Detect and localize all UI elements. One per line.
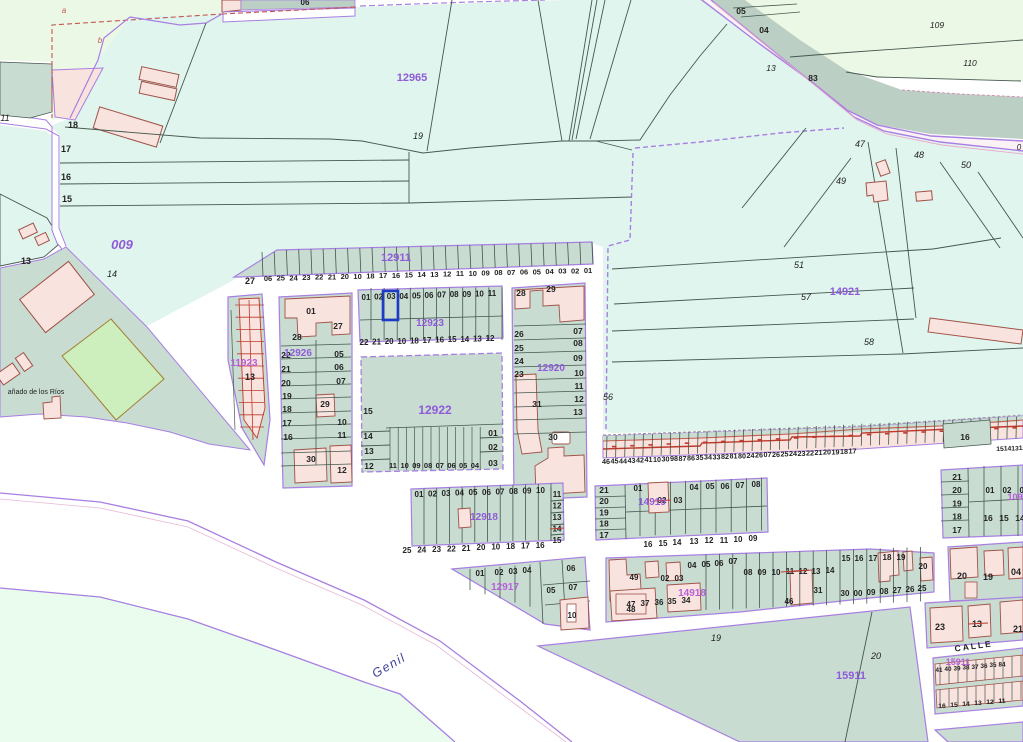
svg-text:41: 41 [645,455,653,464]
svg-text:24: 24 [747,451,755,460]
svg-text:109: 109 [1007,492,1022,502]
svg-text:23: 23 [798,449,806,458]
svg-text:86: 86 [687,453,695,462]
svg-text:16: 16 [435,336,444,345]
svg-text:34: 34 [704,453,712,462]
svg-text:33: 33 [713,452,721,461]
svg-text:28: 28 [292,332,302,342]
svg-text:05: 05 [702,560,711,569]
svg-text:03: 03 [558,267,566,276]
svg-text:49: 49 [630,573,639,582]
svg-text:09: 09 [523,486,532,495]
svg-text:añado de los Ríos: añado de los Ríos [8,389,65,396]
svg-text:04: 04 [399,292,408,301]
svg-text:12920: 12920 [537,363,565,374]
svg-text:02: 02 [571,266,579,275]
svg-text:05: 05 [412,291,421,300]
svg-text:20: 20 [599,496,609,506]
svg-text:81: 81 [730,452,738,461]
svg-text:12917: 12917 [491,582,519,593]
svg-text:19: 19 [897,553,906,562]
svg-text:05: 05 [736,6,746,16]
svg-text:17: 17 [521,542,530,551]
svg-text:26: 26 [906,585,915,594]
svg-text:12: 12 [1019,445,1023,452]
svg-text:17: 17 [379,271,387,280]
svg-text:16: 16 [283,432,293,442]
svg-text:06: 06 [721,482,730,491]
svg-text:18: 18 [506,542,515,551]
svg-text:06: 06 [301,0,310,7]
svg-text:16: 16 [644,540,653,549]
svg-text:16: 16 [983,513,993,523]
svg-text:12: 12 [986,699,994,706]
svg-text:17: 17 [423,336,432,345]
svg-text:01: 01 [362,293,371,302]
svg-text:47: 47 [627,600,636,609]
svg-text:04: 04 [455,489,464,498]
svg-text:07: 07 [729,557,738,566]
svg-text:10: 10 [475,289,484,298]
svg-text:12: 12 [337,465,347,475]
svg-text:11: 11 [456,269,464,278]
svg-text:05: 05 [334,349,344,359]
svg-text:21: 21 [328,272,336,281]
svg-text:10: 10 [353,272,361,281]
svg-text:23: 23 [302,273,310,282]
svg-text:49: 49 [836,176,846,186]
svg-text:08: 08 [752,480,761,489]
svg-text:02: 02 [661,574,670,583]
svg-text:07: 07 [569,583,578,592]
svg-text:12: 12 [443,270,451,279]
svg-text:02: 02 [428,490,437,499]
svg-text:01: 01 [306,306,316,316]
svg-text:13: 13 [364,446,374,456]
svg-text:03: 03 [488,458,498,468]
svg-text:21: 21 [462,544,471,553]
svg-text:84: 84 [998,661,1006,668]
svg-text:14919: 14919 [638,497,666,508]
svg-text:18: 18 [952,512,962,522]
svg-text:37: 37 [971,664,979,671]
svg-text:14: 14 [417,270,426,279]
svg-text:14: 14 [107,269,117,279]
svg-text:04: 04 [523,566,532,575]
svg-text:15: 15 [950,702,958,709]
svg-text:12: 12 [574,394,584,404]
svg-text:46: 46 [602,457,610,466]
svg-text:09: 09 [758,568,767,577]
svg-text:29: 29 [320,399,330,409]
svg-text:07: 07 [436,461,444,470]
svg-text:24: 24 [514,356,524,366]
svg-text:12918: 12918 [470,512,498,523]
svg-text:0: 0 [1017,143,1022,152]
svg-text:16: 16 [392,271,400,280]
svg-text:01: 01 [415,490,424,499]
svg-text:28: 28 [516,288,526,298]
svg-text:22: 22 [447,544,456,553]
svg-text:00: 00 [854,589,863,598]
svg-text:43: 43 [628,456,636,465]
svg-text:29: 29 [546,284,556,294]
svg-text:10: 10 [491,543,500,552]
svg-text:17: 17 [599,530,609,540]
svg-text:06: 06 [567,564,576,573]
svg-text:05: 05 [459,461,467,470]
svg-text:35: 35 [989,662,997,669]
svg-text:01: 01 [488,428,498,438]
svg-text:57: 57 [801,292,812,302]
svg-text:26: 26 [772,450,780,459]
svg-text:12: 12 [486,334,495,343]
svg-text:15: 15 [999,513,1009,523]
svg-text:109: 109 [930,20,944,30]
svg-text:08: 08 [880,587,889,596]
svg-text:19: 19 [282,391,292,401]
svg-text:18: 18 [599,519,609,529]
svg-text:27: 27 [333,321,343,331]
svg-text:01: 01 [634,484,643,493]
svg-text:11: 11 [338,430,347,440]
svg-text:12923: 12923 [416,318,444,329]
svg-text:14: 14 [460,335,469,344]
svg-text:16: 16 [855,554,864,563]
svg-text:21: 21 [1013,624,1023,634]
svg-text:17: 17 [869,554,878,563]
svg-text:15911: 15911 [836,670,866,682]
svg-text:08: 08 [450,290,459,299]
svg-text:04: 04 [471,461,480,470]
svg-text:83: 83 [808,73,818,83]
svg-text:15: 15 [448,335,457,344]
svg-text:11: 11 [389,461,397,470]
svg-text:10: 10 [397,337,406,346]
svg-text:07: 07 [437,291,446,300]
svg-text:20: 20 [957,571,967,581]
svg-text:10: 10 [653,455,661,464]
svg-text:13: 13 [473,334,482,343]
svg-text:27: 27 [245,276,255,286]
svg-text:07: 07 [496,487,505,496]
svg-text:12965: 12965 [397,72,428,84]
svg-text:21: 21 [599,485,609,495]
svg-text:24: 24 [417,546,426,555]
svg-text:80: 80 [738,451,746,460]
svg-text:13: 13 [573,407,583,417]
svg-text:13: 13 [974,700,982,707]
svg-text:07: 07 [573,326,583,336]
svg-text:08: 08 [573,338,583,348]
svg-text:18: 18 [410,336,419,345]
svg-text:12: 12 [553,502,562,511]
svg-text:13: 13 [21,256,31,266]
svg-text:19: 19 [983,572,993,582]
svg-text:31: 31 [532,399,542,409]
svg-text:13: 13 [812,567,821,576]
svg-text:20: 20 [870,651,881,661]
svg-text:24: 24 [789,449,797,458]
svg-text:04: 04 [688,561,697,570]
svg-text:45: 45 [611,457,619,466]
svg-text:01: 01 [584,266,592,275]
svg-text:12: 12 [799,567,808,576]
svg-text:56: 56 [603,392,613,402]
svg-text:35: 35 [668,597,677,606]
svg-text:13: 13 [553,513,562,522]
svg-text:20: 20 [919,562,928,571]
svg-text:14: 14 [673,538,682,547]
svg-text:46: 46 [785,597,794,606]
svg-text:06: 06 [520,268,528,277]
svg-text:06: 06 [482,488,491,497]
svg-text:23: 23 [514,369,524,379]
svg-text:09: 09 [749,534,758,543]
svg-text:21: 21 [815,448,823,457]
svg-text:25: 25 [403,546,412,555]
svg-text:01: 01 [476,569,485,578]
svg-text:08: 08 [494,268,502,277]
svg-text:07: 07 [336,376,346,386]
svg-text:01: 01 [986,486,995,495]
svg-text:22: 22 [360,338,369,347]
svg-text:15: 15 [363,406,373,416]
svg-text:09: 09 [481,269,489,278]
svg-text:05: 05 [706,482,715,491]
svg-text:10: 10 [337,417,347,427]
svg-text:02: 02 [495,568,504,577]
svg-text:20: 20 [952,485,962,495]
svg-text:20: 20 [823,448,831,457]
svg-text:18: 18 [366,271,374,280]
svg-text:16: 16 [938,703,946,710]
svg-text:58: 58 [864,337,874,347]
svg-text:06: 06 [264,274,272,283]
svg-text:09: 09 [573,353,583,363]
svg-text:44: 44 [619,456,627,465]
svg-text:10: 10 [536,486,545,495]
svg-text:17: 17 [282,418,292,428]
svg-text:19: 19 [952,498,962,508]
svg-text:30: 30 [306,454,316,464]
svg-text:14: 14 [962,701,970,708]
svg-text:15: 15 [405,271,413,280]
svg-text:07: 07 [736,481,745,490]
svg-text:18: 18 [282,404,292,414]
svg-text:40: 40 [944,666,952,673]
svg-text:20: 20 [281,378,291,388]
svg-text:27: 27 [893,586,902,595]
svg-text:18: 18 [840,447,848,456]
svg-text:17: 17 [61,144,71,154]
svg-text:30: 30 [548,432,558,442]
svg-text:10: 10 [401,461,409,470]
svg-text:16: 16 [960,432,970,442]
svg-text:19: 19 [711,633,721,643]
svg-text:19: 19 [832,447,840,456]
svg-text:03: 03 [675,574,684,583]
svg-text:20: 20 [385,337,394,346]
svg-text:03: 03 [509,567,518,576]
svg-text:11: 11 [488,289,497,298]
svg-text:06: 06 [334,362,344,372]
svg-text:17: 17 [849,447,857,456]
svg-text:23: 23 [935,622,945,632]
svg-text:09: 09 [867,588,876,597]
svg-text:14: 14 [826,566,835,575]
svg-text:30: 30 [662,455,670,464]
svg-text:15: 15 [553,536,562,545]
svg-text:12: 12 [705,536,714,545]
svg-text:26: 26 [755,451,763,460]
svg-text:25: 25 [918,584,927,593]
svg-text:25: 25 [781,450,789,459]
svg-text:25: 25 [277,274,285,283]
svg-text:13: 13 [245,372,255,382]
svg-text:03: 03 [387,292,396,301]
svg-text:12: 12 [364,461,374,471]
svg-text:04: 04 [690,483,699,492]
svg-text:04: 04 [545,267,554,276]
svg-text:21: 21 [281,364,291,374]
svg-text:07: 07 [507,268,515,277]
svg-text:10: 10 [772,568,781,577]
svg-text:47: 47 [855,139,866,149]
svg-text:14921: 14921 [830,286,861,298]
svg-text:10: 10 [734,535,743,544]
svg-text:13: 13 [430,270,438,279]
svg-text:05: 05 [469,488,478,497]
svg-text:26: 26 [514,329,524,339]
svg-text:07: 07 [764,450,772,459]
svg-text:12922: 12922 [418,403,452,417]
svg-text:22: 22 [315,273,323,282]
svg-text:41: 41 [935,667,943,674]
svg-text:05: 05 [547,586,556,595]
svg-text:19: 19 [599,507,609,517]
svg-text:48: 48 [914,150,924,160]
svg-text:19: 19 [413,131,423,141]
svg-text:98: 98 [670,454,678,463]
svg-text:04: 04 [1011,567,1021,577]
svg-text:09: 09 [462,290,471,299]
svg-text:15: 15 [842,554,851,563]
svg-text:11: 11 [575,381,584,391]
svg-text:110: 110 [963,58,977,68]
svg-text:18: 18 [68,120,78,130]
svg-text:13: 13 [690,537,699,546]
svg-text:06: 06 [447,461,455,470]
svg-text:04: 04 [759,25,769,35]
svg-text:23: 23 [432,545,441,554]
svg-text:11: 11 [998,698,1005,705]
svg-text:24: 24 [289,273,298,282]
svg-text:13: 13 [766,63,776,73]
svg-text:09: 09 [412,461,420,470]
svg-text:25: 25 [514,343,524,353]
svg-text:36: 36 [655,598,664,607]
svg-text:06: 06 [715,559,724,568]
svg-text:10: 10 [469,269,477,278]
svg-text:02: 02 [374,293,383,302]
svg-text:35: 35 [696,453,704,462]
svg-text:11923: 11923 [230,358,258,369]
svg-text:21: 21 [372,338,381,347]
svg-text:51: 51 [794,260,804,270]
svg-text:14: 14 [1015,513,1023,523]
svg-text:31: 31 [814,586,823,595]
svg-text:11: 11 [0,113,9,123]
svg-text:87: 87 [679,454,687,463]
svg-text:30: 30 [841,589,850,598]
svg-text:11: 11 [553,490,562,499]
svg-text:08: 08 [424,461,432,470]
svg-text:009: 009 [111,237,133,252]
svg-text:82: 82 [721,452,729,461]
svg-text:a: a [62,6,67,15]
svg-text:17: 17 [952,525,962,535]
svg-text:11: 11 [720,536,729,545]
svg-text:20: 20 [341,272,349,281]
svg-text:03: 03 [674,496,683,505]
svg-text:12911: 12911 [381,252,411,264]
svg-text:10: 10 [568,611,577,620]
svg-text:15: 15 [659,539,668,548]
svg-text:42: 42 [636,456,644,465]
svg-text:10: 10 [574,368,584,378]
svg-text:08: 08 [509,487,518,496]
svg-text:16: 16 [61,172,71,182]
svg-text:50: 50 [961,160,971,170]
svg-text:15: 15 [62,194,72,204]
svg-text:21: 21 [952,472,962,482]
svg-text:22: 22 [806,448,814,457]
svg-text:20: 20 [477,543,486,552]
svg-text:14: 14 [363,431,373,441]
svg-text:14918: 14918 [678,588,706,599]
svg-text:08: 08 [744,568,753,577]
svg-text:15911: 15911 [946,657,971,667]
svg-text:16: 16 [536,541,545,550]
svg-text:36: 36 [980,663,988,670]
svg-text:37: 37 [641,599,650,608]
svg-text:03: 03 [442,489,451,498]
svg-text:06: 06 [425,291,434,300]
svg-text:05: 05 [533,267,541,276]
svg-text:18: 18 [883,553,892,562]
svg-text:02: 02 [488,442,498,452]
svg-text:12926: 12926 [284,348,312,359]
